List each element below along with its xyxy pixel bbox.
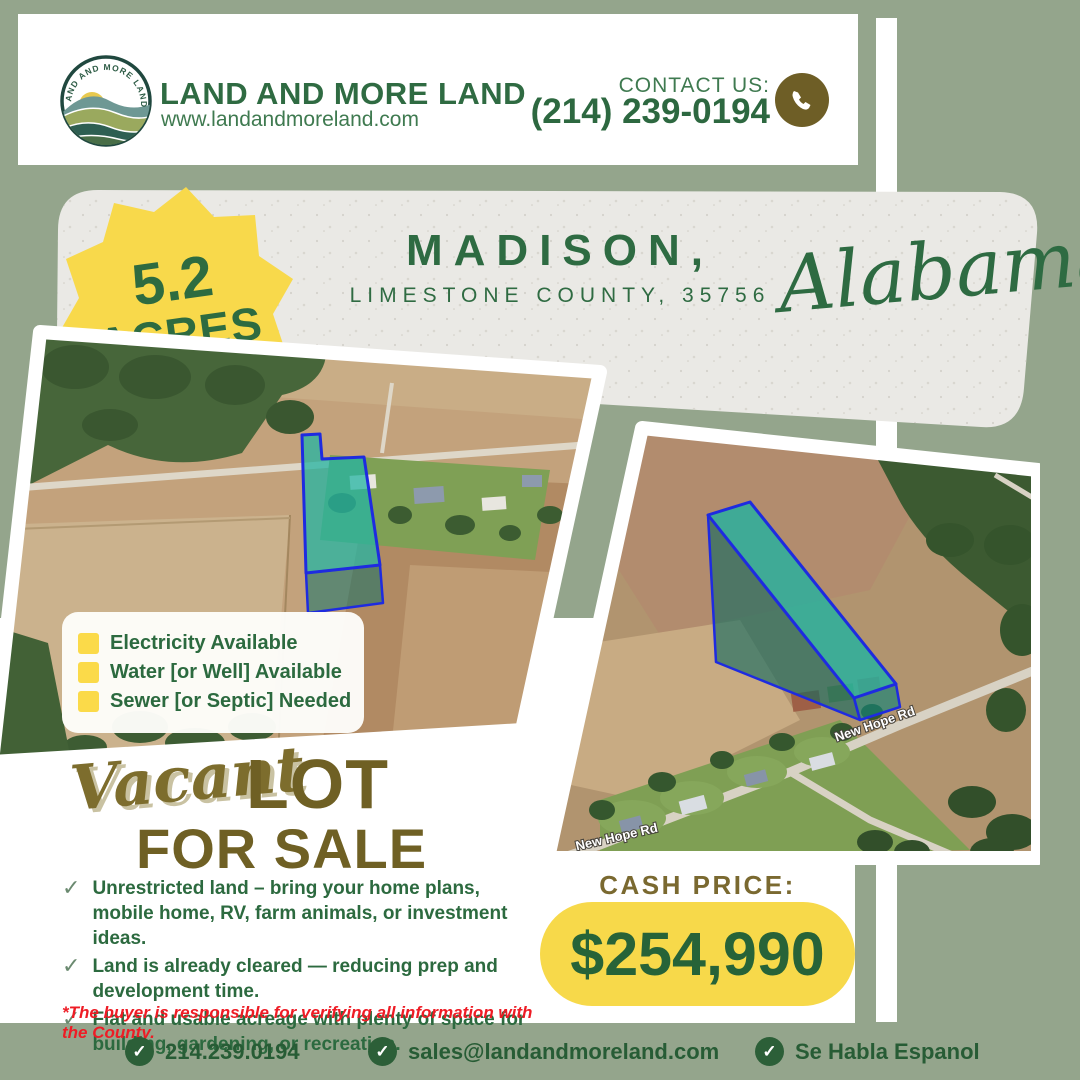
footer-bar: ✓ 214.239.0194 ✓ sales@landandmoreland.c…: [0, 1023, 1080, 1080]
yellow-square-icon: [78, 691, 99, 712]
phone-icon: [787, 85, 817, 115]
footer-email-label: sales@landandmoreland.com: [408, 1039, 719, 1065]
aerial-photo-right: New Hope Rd New Hope Rd: [540, 420, 1040, 865]
check-circle-icon: ✓: [125, 1037, 154, 1066]
feature-label: Water [or Well] Available: [110, 661, 342, 684]
footer-phone-label: 214.239.0194: [165, 1039, 300, 1065]
footer-phone[interactable]: ✓ 214.239.0194: [125, 1037, 300, 1066]
sale-forsale-word: FOR SALE: [136, 816, 427, 881]
city-name: MADISON,: [320, 226, 800, 276]
selling-point: ✓ Land is already cleared — reducing pre…: [62, 954, 537, 1004]
checkmark-icon: ✓: [62, 954, 80, 1004]
selling-point-text: Land is already cleared — reducing prep …: [92, 954, 537, 1004]
feature-row: Electricity Available: [78, 632, 348, 655]
selling-point-text: Unrestricted land – bring your home plan…: [92, 876, 537, 951]
phone-badge[interactable]: [775, 73, 829, 127]
checkmark-icon: ✓: [62, 876, 80, 951]
feature-label: Electricity Available: [110, 632, 298, 655]
yellow-square-icon: [78, 633, 99, 654]
feature-label: Sewer [or Septic] Needed: [110, 690, 351, 713]
price-pill: $254,990: [540, 902, 855, 1006]
price-label: CASH PRICE:: [540, 870, 855, 901]
brand-website: www.landandmoreland.com: [161, 108, 419, 132]
feature-row: Sewer [or Septic] Needed: [78, 690, 348, 713]
check-circle-icon: ✓: [368, 1037, 397, 1066]
footer-email[interactable]: ✓ sales@landandmoreland.com: [368, 1037, 719, 1066]
sale-lot-word: LOT: [246, 744, 389, 824]
footer-language-label: Se Habla Espanol: [795, 1039, 980, 1065]
footer-language: ✓ Se Habla Espanol: [755, 1037, 980, 1066]
price-amount: $254,990: [570, 919, 824, 989]
feature-row: Water [or Well] Available: [78, 661, 348, 684]
yellow-square-icon: [78, 662, 99, 683]
selling-point: ✓ Unrestricted land – bring your home pl…: [62, 876, 537, 951]
contact-phone-number[interactable]: (214) 239-0194: [430, 92, 770, 132]
features-box: Electricity Available Water [or Well] Av…: [62, 612, 364, 733]
county-zip: LIMESTONE COUNTY, 35756: [320, 284, 800, 308]
check-circle-icon: ✓: [755, 1037, 784, 1066]
brand-logo-icon: LAND AND MORE LAND: [58, 53, 154, 149]
location-headline: MADISON, LIMESTONE COUNTY, 35756: [320, 226, 800, 308]
